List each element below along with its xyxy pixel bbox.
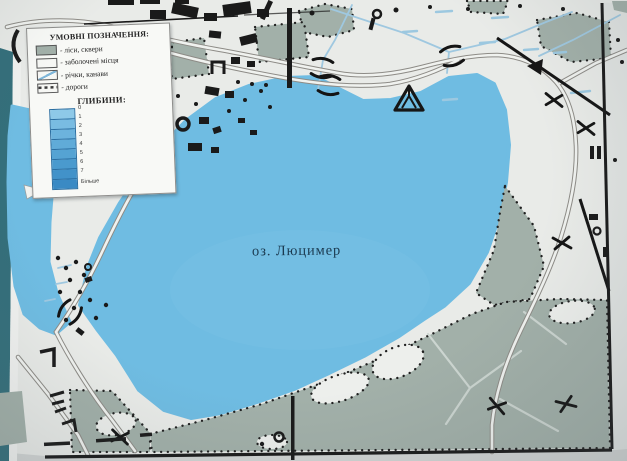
depth-scale-labels: 0 1 2 3 4 5 6 7 Більше [78, 106, 115, 187]
legend-item-label: - дороги [61, 82, 88, 92]
legend-item-label: - заболочені місця [60, 55, 118, 66]
map-legend: УМОВНІ ПОЗНАЧЕННЯ: - ліси, сквери - забо… [26, 22, 176, 198]
legend-swatch-road-icon [37, 82, 58, 93]
legend-item-label: - річки, канави [61, 68, 108, 79]
vertical-line-mark [287, 8, 292, 88]
legend-item-road: - дороги [37, 78, 165, 93]
map-sign-photo: УМОВНІ ПОЗНАЧЕННЯ: - ліси, сквери - забо… [0, 0, 627, 461]
depth-scale: 0 1 2 3 4 5 6 7 Більше [49, 104, 169, 189]
depth-scale-bars [49, 108, 78, 190]
lake-name-label: оз. Люцимер [252, 243, 341, 261]
legend-swatch-river-icon [37, 70, 58, 81]
legend-item-label: - ліси, сквери [60, 44, 103, 55]
legend-swatch-forest-icon [36, 45, 57, 56]
legend-swatch-swamp-icon [36, 57, 57, 68]
